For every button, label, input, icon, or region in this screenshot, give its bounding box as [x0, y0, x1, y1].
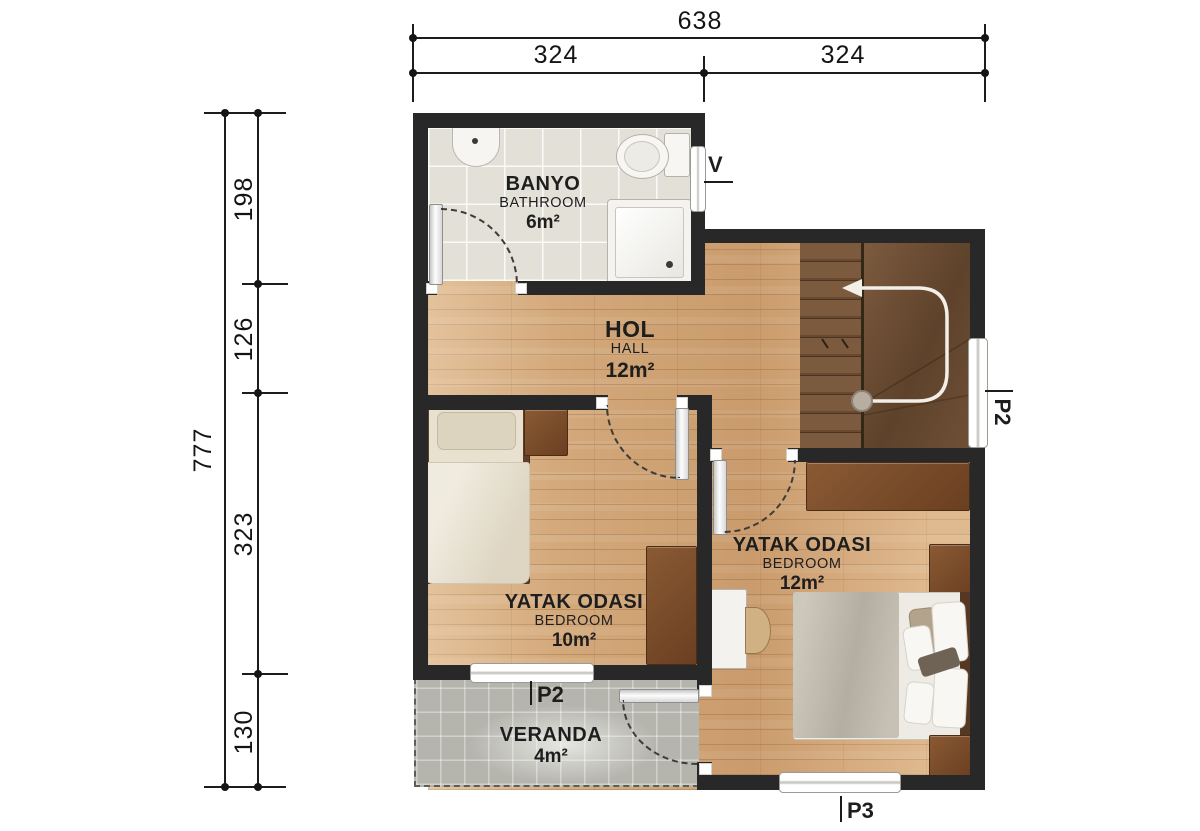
dim-value-height-seg4: 130 — [229, 687, 259, 777]
dim-line-width-segments — [413, 72, 985, 74]
dim-tick — [242, 283, 288, 285]
dim-dot — [700, 69, 708, 77]
wall — [518, 281, 705, 295]
veranda-label: VERANDA 4m² — [471, 725, 631, 769]
room-subname: BEDROOM — [762, 556, 841, 573]
dim-dot — [981, 69, 989, 77]
veranda-window-p2 — [470, 663, 594, 683]
window-tag-p3-tick — [840, 796, 842, 822]
room-area: 12m² — [605, 358, 654, 383]
dim-dot — [981, 34, 989, 42]
dim-line-total-height — [224, 113, 226, 789]
single-bed-pillow — [437, 412, 516, 450]
room-name: BANYO — [506, 174, 581, 195]
dim-dot — [254, 670, 262, 678]
dim-value-total-height: 777 — [188, 405, 218, 495]
wall — [413, 395, 608, 410]
room-name: YATAK ODASI — [505, 592, 643, 613]
floor-plan: BANYO BATHROOM 6m² HOL HALL 12m² YATAK O… — [0, 0, 1200, 831]
dim-value-total-width: 638 — [655, 6, 745, 36]
bedroom2-label: YATAK ODASI BEDROOM 12m² — [702, 535, 902, 595]
window-tag-v: V — [708, 152, 723, 178]
bed-pillow — [903, 681, 935, 726]
dim-value-width-seg1: 324 — [511, 40, 601, 70]
dim-tick — [703, 56, 705, 102]
room-area: 6m² — [526, 212, 560, 235]
hall-label: HOL HALL 12m² — [570, 317, 690, 383]
bathroom-label: BANYO BATHROOM 6m² — [463, 174, 623, 234]
dim-extension-line — [204, 786, 286, 788]
dim-value-width-seg2: 324 — [798, 40, 888, 70]
dim-value-height-seg3: 323 — [229, 489, 259, 579]
room-subname: BEDROOM — [534, 613, 613, 630]
sink-drain — [472, 138, 478, 144]
dim-tick — [242, 673, 288, 675]
door-jamb — [699, 763, 712, 775]
dim-tick — [242, 392, 288, 394]
room-name: YATAK ODASI — [733, 535, 871, 556]
room-name: HOL — [605, 317, 655, 341]
toilet-bowl-inner — [624, 141, 660, 172]
dim-dot — [409, 69, 417, 77]
dim-dot — [254, 783, 262, 791]
stair-direction-arrow — [800, 243, 970, 452]
room-area: 12m² — [780, 573, 824, 596]
bed-pillow — [931, 667, 968, 729]
dim-dot — [221, 109, 229, 117]
dim-dot — [409, 34, 417, 42]
double-bed-duvet — [793, 592, 899, 738]
nightstand — [524, 409, 568, 456]
nightstand — [929, 735, 971, 777]
window-tag-p2-veranda: P2 — [537, 682, 564, 708]
wall — [970, 229, 985, 790]
long-dresser — [806, 462, 970, 511]
bathroom-window — [690, 146, 706, 212]
window-tag-p2-side: P2 — [989, 392, 1015, 432]
dim-extension-line — [204, 112, 286, 114]
bedroom1-label: YATAK ODASI BEDROOM 10m² — [474, 592, 674, 652]
side-window-p2 — [968, 338, 988, 448]
door-jamb — [699, 685, 712, 697]
room-area: 10m² — [552, 630, 596, 653]
room-name: VERANDA — [500, 725, 602, 746]
room-area: 4m² — [534, 746, 568, 769]
nightstand — [929, 544, 971, 598]
dim-value-height-seg1: 198 — [229, 154, 259, 244]
dim-dot — [221, 783, 229, 791]
dim-dot — [254, 280, 262, 288]
shower-tray-inner — [615, 207, 684, 278]
desk — [707, 589, 747, 669]
dim-line-total-width — [413, 37, 985, 39]
wall — [413, 113, 705, 128]
shower-drain — [666, 261, 673, 268]
rear-window-p3 — [779, 772, 901, 793]
dim-dot — [254, 389, 262, 397]
single-bed-blanket — [424, 462, 530, 584]
dim-dot — [254, 109, 262, 117]
wall — [788, 448, 985, 462]
dim-value-height-seg2: 126 — [229, 294, 259, 384]
room-subname: BATHROOM — [499, 195, 587, 212]
window-tag-v-underline — [704, 181, 733, 183]
wall — [691, 229, 985, 243]
window-tag-p3: P3 — [847, 798, 874, 824]
room-subname: HALL — [611, 341, 650, 358]
window-tag-p2v-tick — [530, 681, 532, 705]
